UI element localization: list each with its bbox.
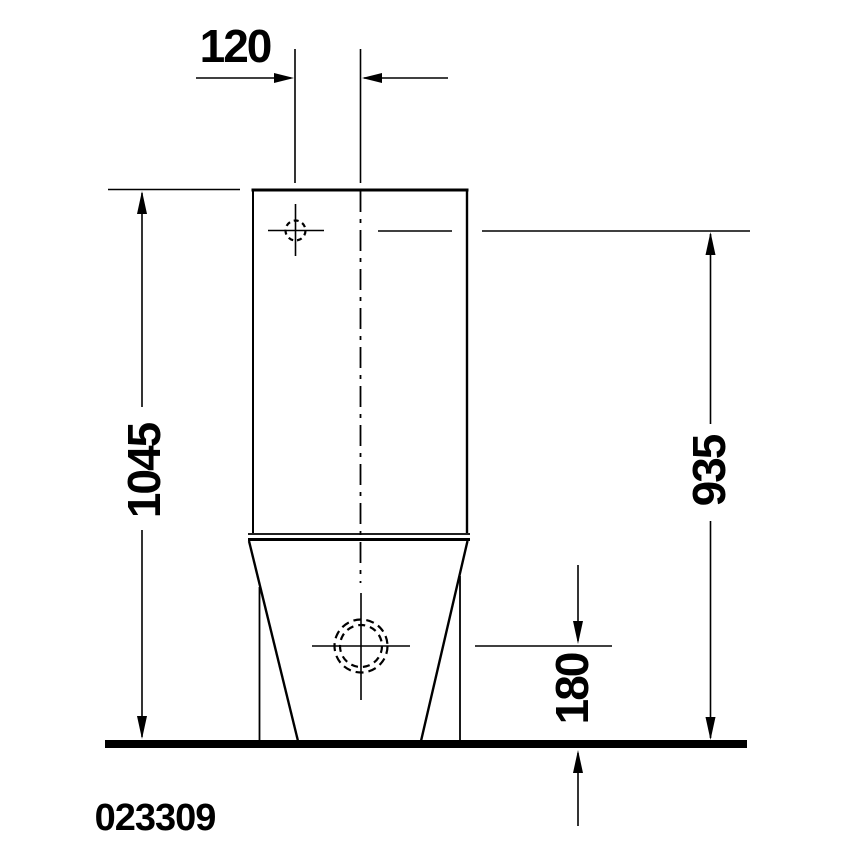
arrow-up-icon [573,750,583,773]
arrow-down-icon [137,716,147,739]
arrow-right-icon [274,73,294,83]
outlet-marker [312,593,410,700]
dim-label-1045: 1045 [121,424,167,518]
dim-label-935: 935 [686,436,732,507]
inlet-hole-marker [268,204,324,256]
arrow-left-icon [362,73,382,83]
pedestal-outline [249,541,468,741]
cistern-outline [248,189,470,540]
product-code-label: 023309 [95,799,216,837]
arrow-up-icon [137,191,147,214]
dim-label-120: 120 [200,23,271,69]
pedestal-left-slant [249,541,298,741]
arrow-down-icon [573,621,583,644]
arrow-down-icon [706,717,716,740]
arrow-up-icon [706,232,716,255]
dim-label-180: 180 [549,654,595,725]
technical-drawing-canvas: 120 1045 935 180 023309 [0,0,850,850]
